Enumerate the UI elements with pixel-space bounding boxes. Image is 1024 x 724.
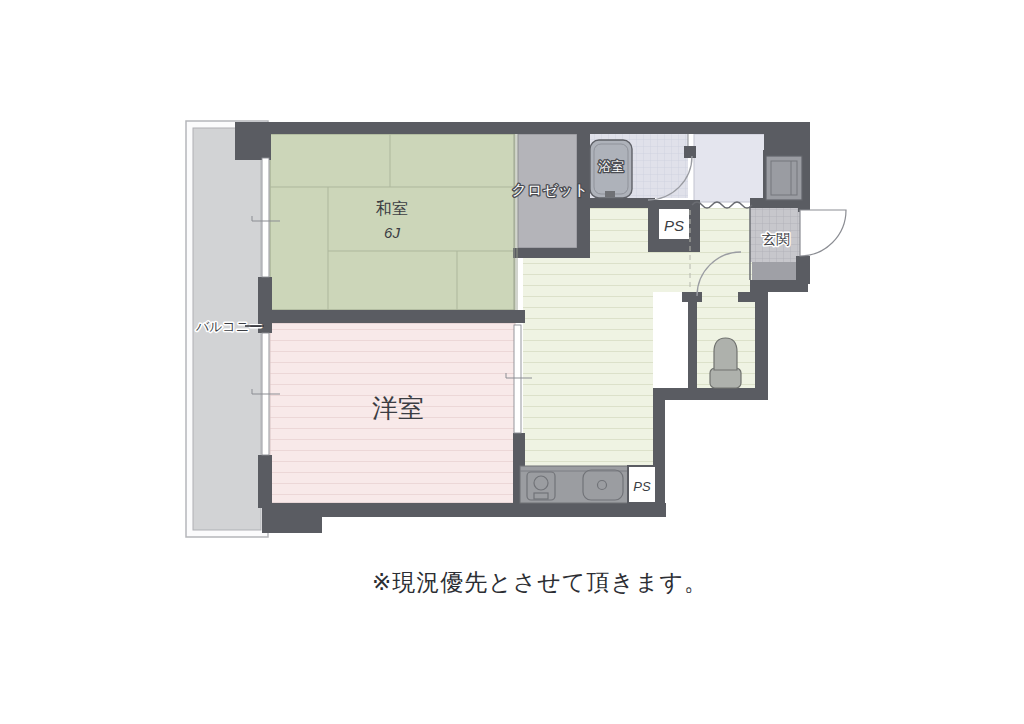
closet-label: クロゼット bbox=[512, 181, 589, 198]
japanese-room-floor bbox=[270, 134, 515, 310]
entrance-label: 玄関 bbox=[762, 231, 790, 247]
japanese-room-label: 和室 bbox=[375, 200, 408, 217]
western-room-label: 洋室 bbox=[372, 393, 424, 423]
floorplan-drawing: バルコニー 和室 6J 洋室 クロゼット 浴室 PS PS 玄関 ※現況優先とさ… bbox=[0, 0, 1024, 724]
entrance-door bbox=[800, 210, 846, 256]
toilet-fixture bbox=[710, 338, 741, 388]
shoe-cabinet bbox=[766, 156, 802, 200]
bathroom-label: 浴室 bbox=[598, 159, 624, 174]
washroom-floor bbox=[694, 134, 766, 202]
curtain-wavy-line bbox=[692, 202, 752, 208]
note-text: ※現況優先とさせて頂きます。 bbox=[372, 569, 708, 595]
pipe-space-upper-label: PS bbox=[664, 217, 684, 234]
japanese-room-size-label: 6J bbox=[384, 224, 400, 241]
floorplan-page: バルコニー 和室 6J 洋室 クロゼット 浴室 PS PS 玄関 ※現況優先とさ… bbox=[0, 0, 1024, 724]
kitchen-counter bbox=[520, 466, 628, 503]
pipe-space-lower-label: PS bbox=[633, 479, 651, 494]
balcony-label-group: バルコニー bbox=[195, 319, 264, 334]
